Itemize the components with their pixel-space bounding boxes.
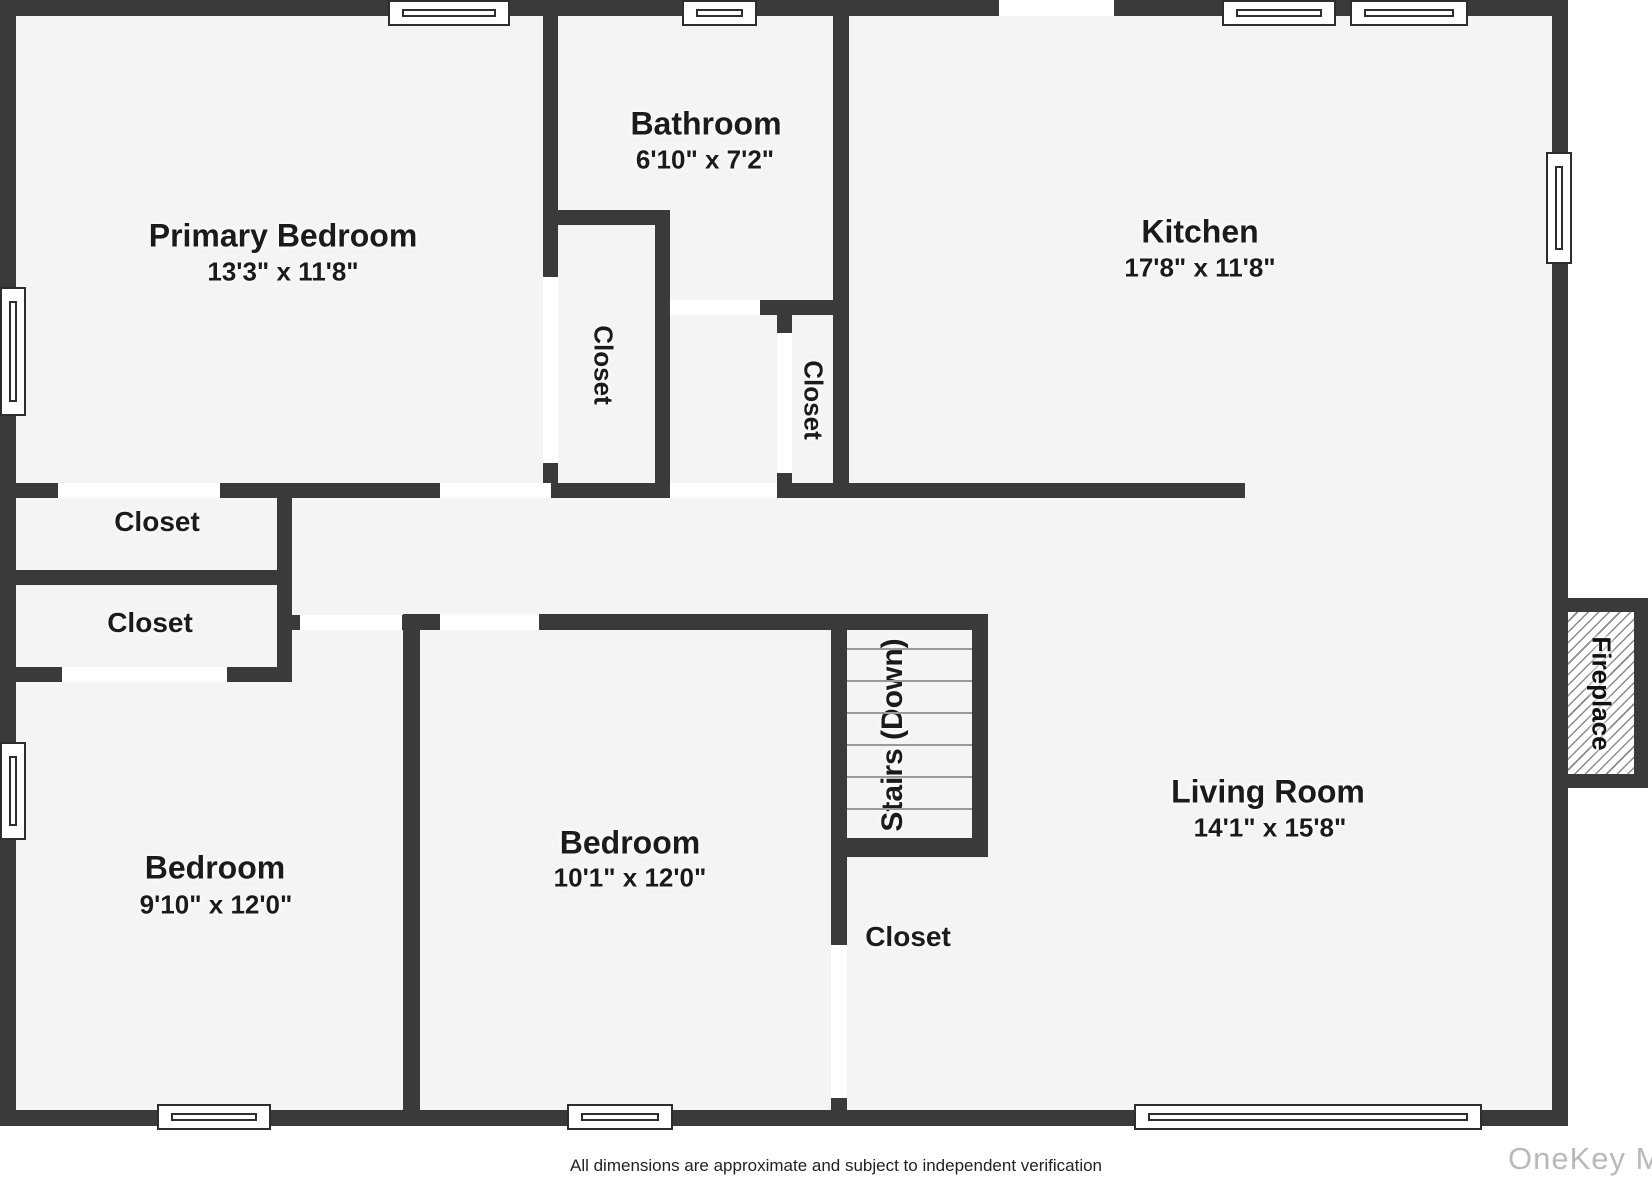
- door-opening: [777, 333, 792, 473]
- bathroom-dims: 6'10" x 7'2": [636, 145, 774, 176]
- disclaimer-text: All dimensions are approximate and subje…: [570, 1156, 1102, 1176]
- wall-segment: [0, 667, 62, 682]
- window-icon: [0, 287, 26, 416]
- left-closet-lower-label: Closet: [107, 607, 193, 639]
- wall-segment: [777, 300, 792, 333]
- living-room-dims: 14'1" x 15'8": [1194, 813, 1347, 844]
- window-icon: [567, 1104, 673, 1130]
- door-opening: [58, 483, 220, 498]
- watermark-text: OneKey MLS: [1508, 1141, 1652, 1177]
- window-icon: [682, 0, 757, 26]
- door-opening: [670, 300, 760, 315]
- fireplace-label: Fireplace: [1586, 636, 1617, 750]
- wall-segment: [543, 16, 558, 277]
- bathroom-closet-label: Closet: [588, 325, 619, 404]
- wall-segment: [831, 1098, 847, 1110]
- bedroom-middle-label: Bedroom: [560, 825, 700, 862]
- bedroom-left-label: Bedroom: [145, 850, 285, 887]
- door-opening: [831, 945, 847, 1098]
- window-icon: [1222, 0, 1336, 26]
- door-opening: [440, 483, 551, 498]
- wall-segment: [831, 614, 847, 945]
- bathroom-label: Bathroom: [630, 106, 781, 143]
- wall-segment: [551, 483, 670, 498]
- primary-bedroom-label: Primary Bedroom: [149, 218, 418, 255]
- wall-segment: [0, 0, 16, 1126]
- wall-segment: [831, 838, 988, 857]
- wall-segment: [285, 615, 300, 630]
- window-icon: [1546, 152, 1572, 264]
- wall-segment: [833, 0, 849, 498]
- window-icon: [1350, 0, 1468, 26]
- fireplace: Fireplace: [1568, 598, 1648, 788]
- door-opening: [300, 615, 402, 630]
- kitchen-dims: 17'8" x 11'8": [1124, 253, 1275, 284]
- left-closet-upper-label: Closet: [114, 506, 200, 538]
- wall-segment: [403, 614, 440, 630]
- primary-bedroom-dims: 13'3" x 11'8": [207, 257, 358, 288]
- floor-area: [16, 16, 1552, 1110]
- door-opening: [62, 667, 227, 682]
- wall-segment: [0, 483, 58, 498]
- stair-tread: [847, 680, 972, 682]
- wall-segment: [972, 614, 988, 857]
- door-opening: [670, 483, 777, 498]
- window-icon: [157, 1104, 271, 1130]
- stair-tread: [847, 648, 972, 650]
- wall-segment: [777, 483, 1245, 498]
- stair-tread: [847, 776, 972, 778]
- under-stairs-closet-label: Closet: [865, 921, 951, 953]
- wall-segment: [543, 210, 670, 225]
- window-icon: [388, 0, 510, 26]
- door-opening: [543, 277, 558, 463]
- window-icon: [0, 742, 26, 840]
- stair-tread: [847, 744, 972, 746]
- stair-tread: [847, 808, 972, 810]
- door-opening: [999, 0, 1114, 16]
- wall-segment: [539, 614, 988, 630]
- wall-segment: [655, 210, 670, 498]
- wall-segment: [0, 570, 292, 585]
- floor-plan: Primary Bedroom 13'3" x 11'8" Bathroom 6…: [0, 0, 1652, 1175]
- bedroom-left-dims: 9'10" x 12'0": [140, 890, 293, 921]
- living-room-label: Living Room: [1171, 774, 1365, 811]
- wall-segment: [227, 667, 292, 682]
- wall-segment: [220, 483, 440, 498]
- wall-segment: [403, 615, 420, 1110]
- hall-closet-label: Closet: [798, 360, 829, 439]
- bedroom-middle-dims: 10'1" x 12'0": [554, 863, 707, 894]
- door-opening: [440, 614, 539, 630]
- stairs-label: Stairs (Down): [876, 638, 910, 831]
- window-icon: [1134, 1104, 1482, 1130]
- kitchen-label: Kitchen: [1141, 214, 1258, 251]
- stair-tread: [847, 712, 972, 714]
